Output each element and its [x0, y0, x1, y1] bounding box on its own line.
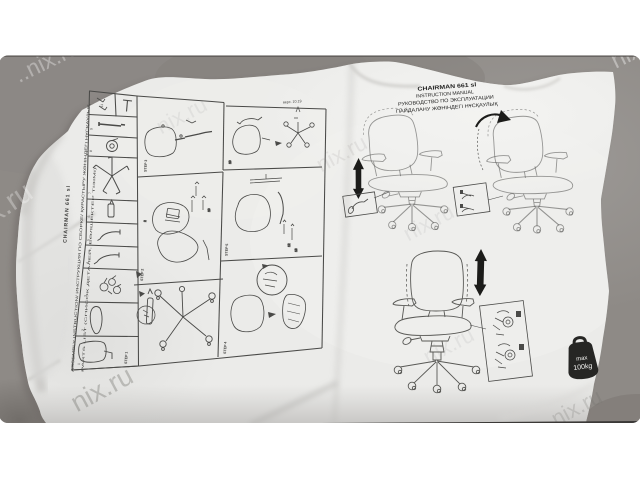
svg-text:10: 10 [207, 208, 211, 212]
svg-text:STEP 5: STEP 5 [225, 244, 230, 257]
svg-text:12: 12 [287, 243, 291, 247]
svg-text:10: 10 [228, 160, 232, 164]
svg-text:5: 5 [87, 239, 91, 241]
svg-text:4: 4 [86, 262, 90, 264]
svg-text:STEP 3: STEP 3 [144, 160, 149, 173]
svg-text:1: 1 [77, 363, 81, 365]
svg-text:9: 9 [90, 128, 94, 130]
svg-text:7: 7 [88, 192, 92, 194]
svg-text:11: 11 [100, 104, 104, 108]
svg-text:2: 2 [81, 329, 85, 331]
svg-text:6: 6 [87, 215, 91, 217]
svg-text:13: 13 [294, 248, 298, 252]
svg-text:3: 3 [84, 295, 88, 297]
svg-text:STEP 4: STEP 4 [223, 342, 228, 355]
svg-text:8: 8 [89, 150, 93, 152]
